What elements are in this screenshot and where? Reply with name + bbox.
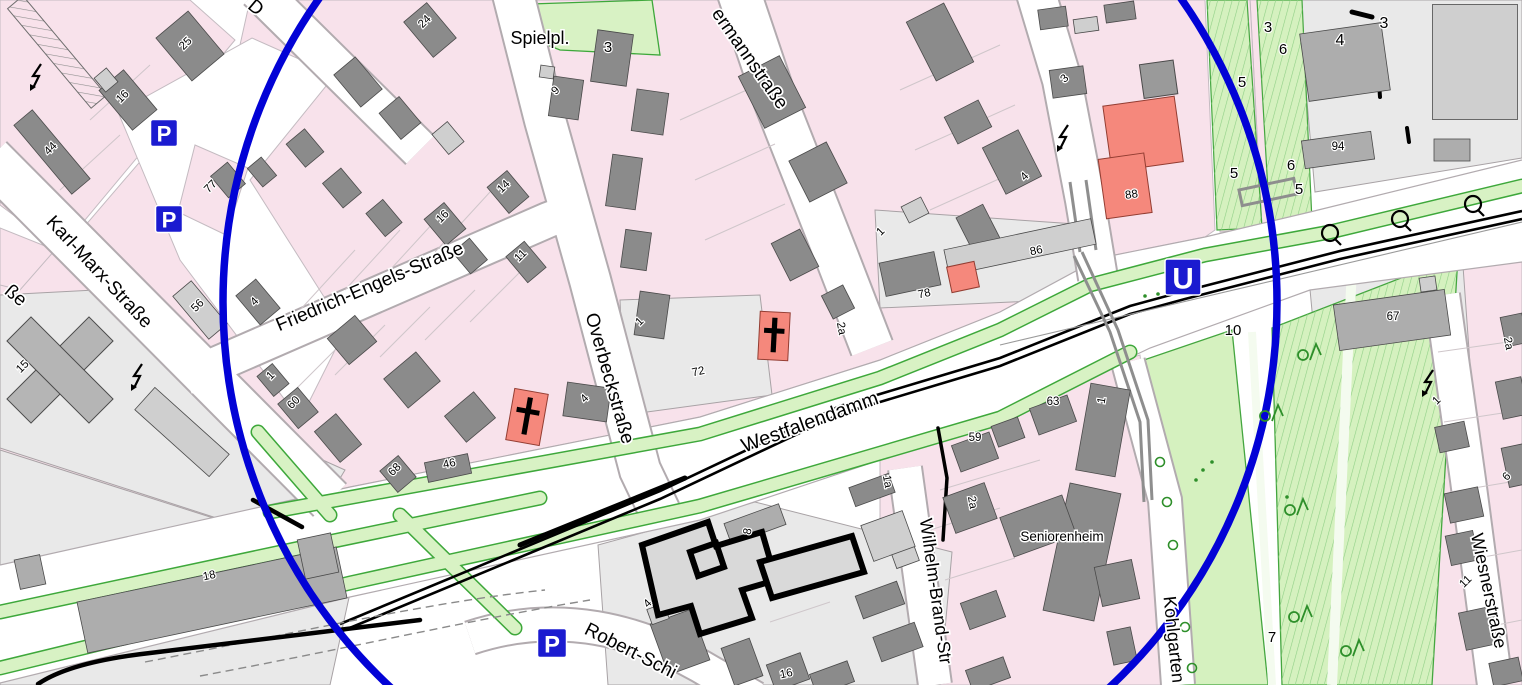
building [1434, 139, 1470, 161]
vegetation-dot [1194, 478, 1198, 482]
svg-text:P: P [162, 208, 177, 233]
house-number: 7 [1268, 629, 1276, 646]
house-number: 3 [1380, 15, 1389, 32]
building [1444, 487, 1483, 523]
house-number: 5 [1230, 165, 1238, 182]
red-building-small [947, 261, 980, 292]
building [1435, 421, 1470, 453]
house-number: 5 [1295, 181, 1303, 198]
building [631, 89, 669, 135]
vegetation-dot [1210, 460, 1214, 464]
building [1300, 23, 1391, 102]
house-number: 6 [1287, 157, 1295, 174]
parking-icon[interactable]: P [151, 120, 178, 147]
house-number: 67 [1387, 311, 1400, 323]
city-map[interactable]: Karl-Marx-StraßeFriedrich-Engels-Straßee… [0, 0, 1522, 685]
building [14, 555, 46, 590]
vegetation-dot [1156, 292, 1160, 296]
place-label: Spielpl. [510, 28, 569, 48]
building [1433, 5, 1518, 120]
house-number: 59 [969, 432, 982, 444]
building [1073, 16, 1099, 33]
building [1038, 6, 1069, 30]
church-building [758, 311, 790, 361]
building [634, 291, 670, 339]
house-number: 3 [604, 39, 612, 56]
parking-icon[interactable]: P [538, 629, 567, 659]
house-number: 6 [1279, 41, 1287, 58]
subway-icon[interactable]: U [1165, 259, 1201, 296]
house-number: 5 [1238, 74, 1246, 91]
place-label: Seniorenheim [1020, 529, 1103, 544]
building [1094, 559, 1139, 606]
vegetation-dot [1201, 468, 1205, 472]
vegetation-dot [1285, 495, 1289, 499]
house-number: 3 [1264, 19, 1272, 36]
building [1419, 276, 1437, 292]
building [1104, 1, 1136, 23]
house-number: 10 [1225, 322, 1242, 339]
house-number: 63 [1047, 396, 1060, 408]
svg-text:P: P [157, 122, 172, 147]
parking-icon[interactable]: P [156, 206, 183, 233]
building [620, 229, 651, 270]
building [539, 65, 555, 79]
svg-text:P: P [544, 631, 560, 658]
vegetation-dot [1143, 294, 1147, 298]
building [548, 76, 583, 120]
map-viewport[interactable]: Karl-Marx-StraßeFriedrich-Engels-Straßee… [0, 0, 1522, 685]
house-number: 94 [1332, 141, 1345, 153]
house-number: 4 [1336, 32, 1345, 49]
house-number: 88 [1124, 188, 1138, 202]
svg-text:U: U [1172, 263, 1193, 296]
